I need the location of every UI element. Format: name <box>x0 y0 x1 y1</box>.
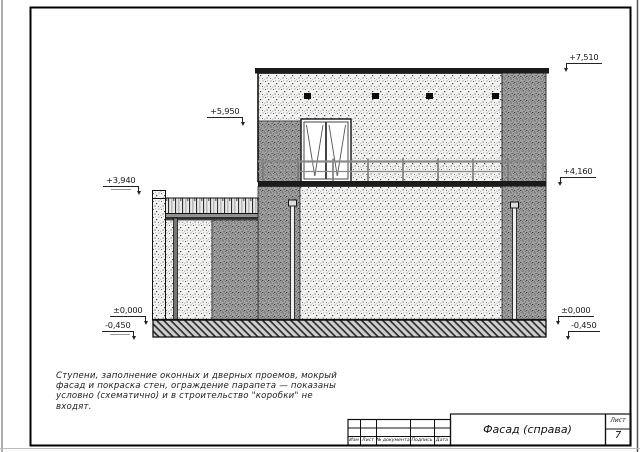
elevation-marker-plus-5950: +5,950 <box>207 106 243 118</box>
elevation-marker-plus-7510: +7,510 <box>566 52 602 64</box>
note-line: Ступени, заполнение оконных и дверных пр… <box>56 371 356 381</box>
elevation-marker-zero-left: ±0,000 <box>110 305 146 317</box>
upper-floor-wall <box>258 70 502 182</box>
sheet-number: 7 <box>605 428 631 444</box>
sheet-label: Лист <box>605 415 631 427</box>
note-line: условно (схематично) и в строительство "… <box>56 391 356 401</box>
note-line: фасад и покраска стен, ограждение парапе… <box>56 381 356 391</box>
sheet-title: Фасад (справа) <box>450 414 605 445</box>
level-tick-line <box>110 334 130 335</box>
level-tick-line <box>111 189 131 190</box>
titleblock-col-list: Лист <box>360 437 376 445</box>
note-line: входят. <box>56 402 356 412</box>
elevation-marker-plus-3940: +3,940 <box>103 175 139 187</box>
elevation-marker-zero-right: ±0,000 <box>558 305 594 317</box>
canopy-pillar <box>153 191 166 321</box>
pergola-canopy <box>163 198 258 220</box>
right-corner-column <box>502 70 546 320</box>
left-wing-wall <box>165 220 258 320</box>
titleblock-col-izm: Изм <box>348 437 360 445</box>
elevation-marker-plus-4160: +4,160 <box>560 166 596 178</box>
titleblock-col-data: Дата <box>434 437 450 445</box>
canopy-post <box>174 218 178 320</box>
general-note: Ступени, заполнение оконных и дверных пр… <box>56 371 356 412</box>
titleblock-col-podpis: Подпись <box>410 437 434 445</box>
titleblock-col-ndoc: № документа <box>376 437 410 445</box>
elevation-marker-minus-450-right: -0,450 <box>568 320 600 332</box>
plinth-band <box>153 320 546 338</box>
parapet-coping <box>255 68 549 74</box>
interfloor-slab <box>258 181 546 187</box>
balcony-door <box>301 119 351 182</box>
elevation-marker-minus-450-left: -0,450 <box>102 320 134 332</box>
drawing-sheet: +7,510 +5,950 +3,940 +4,160 ±0,000 ±0,00… <box>0 0 640 452</box>
